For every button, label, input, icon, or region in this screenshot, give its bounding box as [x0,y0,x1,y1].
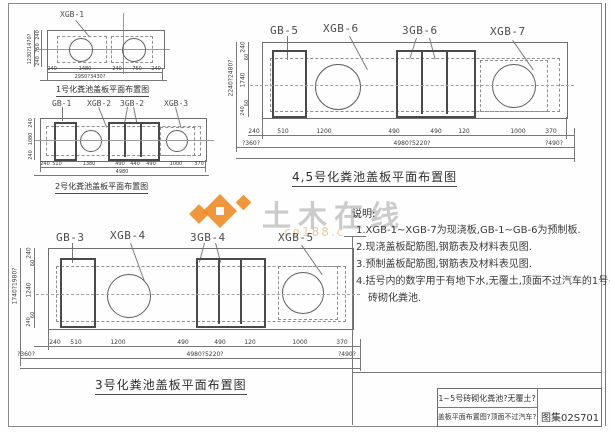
dim-line [248,135,574,136]
titleblock-sheet-title: 盖板平面布置图?顶面不过汽车? [438,412,536,422]
dim-extension [566,117,567,139]
dim-line [20,248,21,366]
dim-label: 240 [35,30,41,40]
dim-extension [205,160,206,172]
centerline [34,140,214,141]
dim-extension [360,339,361,371]
precast-board [54,122,77,161]
dim-label: 240 [26,317,32,327]
dim-label: 490 [214,339,225,346]
dim-line [47,72,163,73]
dim-total-label: 1740?1980? [12,268,19,305]
note-item: 3.预制盖板配筋图,钢筋表及材料表见图. [356,255,532,270]
dim-line [40,80,167,81]
dim-label: 750 [35,43,41,53]
titleblock-atlas-number: 图集02S701 [541,409,599,424]
dim-extension [262,117,263,139]
manhole-circle [122,38,146,62]
manhole-circle [107,274,151,318]
dim-label: 490 [177,339,188,346]
dim-label: 240 [35,56,41,66]
plate-label: GB-5 [270,24,299,37]
dim-label: 1230?1470? [27,34,33,65]
dim-line [236,158,574,159]
view-caption-2: 2号化粪池盖板平面布置图 [55,181,148,194]
dim-label: 4980?5220? [187,351,224,358]
plate-label-xgb1: XGB-1 [60,10,84,19]
titleblock-project-title: 1~5号砖砌化粪池?无覆土? [438,393,535,404]
dim-extension [352,328,353,350]
notes-heading: 说明: [352,205,375,220]
dim-label: 240 [248,128,259,135]
note-item-cont: 砖砌化粪池. [368,289,421,304]
manhole-circle [69,38,93,62]
note-item: 2.现浇盖板配筋图,钢筋表及材料表见图. [356,238,532,253]
dim-label: 4980?5220? [394,140,431,147]
note-item: 4.括号内的数字用于有地下水,无覆土,顶面不过汽车的1号~5号 [356,272,610,287]
titleblock-divider [537,388,538,425]
dim-label: 1240 [26,282,33,297]
dim-line [34,118,35,160]
dim-label: 370 [336,339,347,346]
dim-label: 120 [458,128,469,135]
plate-label: GB-3 [56,231,85,244]
dim-label: 490 [430,128,441,135]
sheet-border-right-inner [605,3,606,426]
dim-label: 1000 [292,339,307,346]
dim-label: 1200 [110,339,125,346]
dim-label: 120 [244,339,255,346]
dim-label: 60 [244,54,250,60]
region-divider-stub [344,236,366,237]
centerline [36,294,360,295]
board-joint [218,258,220,324]
precast-board [60,258,96,328]
dim-label: 240 [28,118,34,128]
dim-line [40,167,205,168]
board-joint [240,258,242,324]
dim-extension [40,160,41,172]
dim-label: 1080 [28,133,34,146]
region-divider-bottom [352,372,601,373]
dim-label: 60 [244,100,250,106]
dim-label: 240 [240,41,247,52]
dim-line [34,346,360,347]
view-caption-45: 4,5号化粪池盖板平面布置图 [292,168,457,187]
centerline [250,85,574,86]
dim-line [41,30,42,67]
view-caption-3: 3号化粪池盖板平面布置图 [95,376,247,395]
dim-label: ?360? [17,351,35,358]
board-joint [421,50,423,114]
dim-label: 510 [277,128,288,135]
manhole-circle [315,64,361,110]
dim-line [20,368,360,369]
plate-label: XGB-4 [110,229,146,242]
dim-label: 1740 [240,72,247,87]
dim-label: ?490? [545,140,563,147]
view-caption-1: 1号化粪池盖板平面布置图 [56,84,149,97]
dim-label: 240 [49,339,60,346]
dim-label: 510 [70,339,81,346]
dim-line [20,358,360,359]
drawing-sheet: 土木在线 co188.c XGB-1 240 750 240 1230?1470… [0,0,610,432]
board-joint [446,50,448,114]
dim-total-label: 2240?2480? [228,60,235,97]
dim-label: 370 [545,128,556,135]
manhole-circle [166,130,188,152]
dim-line [236,147,574,148]
note-item: 1.XGB-1~XGB-7为现浇板,GB-1~GB-6为预制板. [356,221,581,236]
dim-label: 240 [26,247,33,258]
dim-label: 490 [388,128,399,135]
plate-label: 3GB-6 [402,24,438,37]
dim-label: ?360? [242,140,260,147]
manhole-circle [80,130,102,152]
precast-board-group [108,122,160,161]
manhole-circle [282,272,324,314]
plate-label: XGB-6 [323,22,359,35]
dim-label: 60 [30,260,36,266]
dim-label: 240 [240,106,246,116]
plate-label: XGB-7 [490,25,526,38]
dim-extension [574,128,575,162]
plate-label: 3GB-4 [190,231,226,244]
precast-board-group [396,50,476,118]
dim-line [34,175,209,176]
dim-extension [48,328,49,350]
dim-label: 1200 [316,128,331,135]
titleblock-row-line [437,407,537,408]
precast-board [272,50,307,118]
manhole-circle [492,64,536,108]
plate-label: XGB-5 [278,231,314,244]
dim-label: 240 [28,150,34,160]
dim-label: 1000 [510,128,525,135]
dim-line [236,42,237,152]
dim-label: ?490? [338,351,356,358]
precast-board-group [196,258,266,328]
